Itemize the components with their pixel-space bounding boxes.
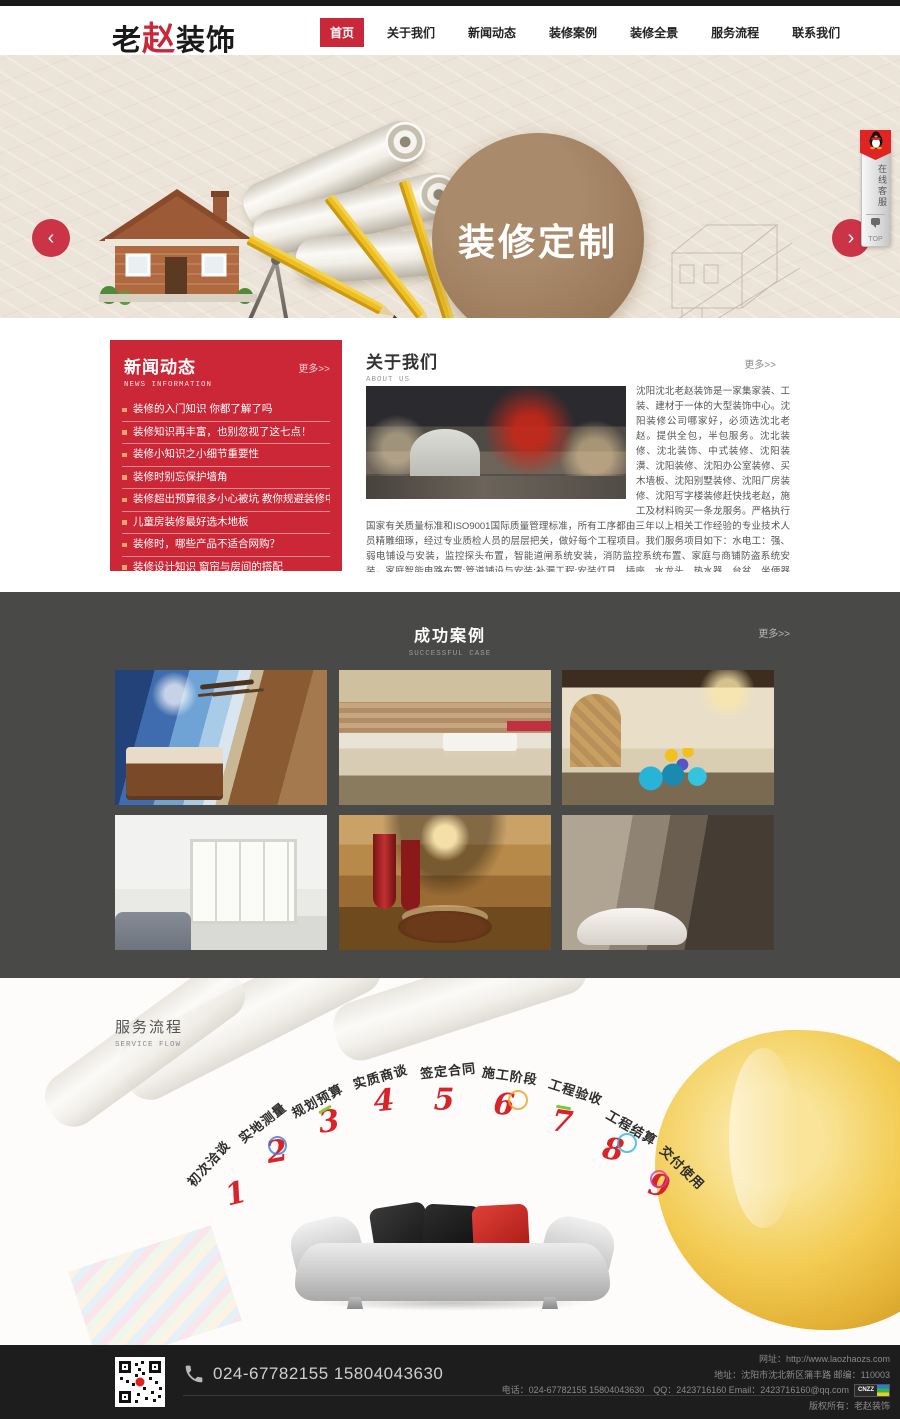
color-stripes-decoration bbox=[68, 1225, 242, 1345]
online-service-label[interactable]: 在线客服 bbox=[862, 164, 889, 208]
hero-banner: 装修定制 ‹ › 在线客服 TOP bbox=[0, 55, 900, 318]
logo-part1: 老 bbox=[112, 23, 142, 57]
footer-phone-number: 024-67782155 15804043630 bbox=[213, 1364, 443, 1384]
about-body: 沈阳沈北老赵装饰是一家集家装、工装、建材于一体的大型装饰中心。沈阳装修公司哪家好… bbox=[366, 384, 790, 572]
nav-item-about[interactable]: 关于我们 bbox=[377, 18, 445, 47]
nav-item-cases[interactable]: 装修案例 bbox=[539, 18, 607, 47]
about-section: 关于我们 ABOUT US 更多>> 沈阳沈北老赵装饰是一家集家装、工装、建材于… bbox=[366, 340, 790, 572]
header: 老赵装饰 首页 关于我们 新闻动态 装修案例 装修全景 服务流程 联系我们 bbox=[0, 6, 900, 56]
nav-item-service[interactable]: 服务流程 bbox=[701, 18, 769, 47]
service-step-number-5: 5 bbox=[434, 1083, 455, 1118]
banner-prev-button[interactable]: ‹ bbox=[32, 219, 70, 257]
news-panel: 新闻动态 NEWS INFORMATION 更多>> 装修的入门知识 你都了解了… bbox=[110, 340, 342, 571]
logo-part2: 赵 bbox=[142, 19, 176, 58]
logo-part3: 装饰 bbox=[176, 23, 236, 57]
nav-item-contact[interactable]: 联系我们 bbox=[782, 18, 850, 47]
nav-item-news[interactable]: 新闻动态 bbox=[458, 18, 526, 47]
news-subtitle: NEWS INFORMATION bbox=[124, 381, 328, 389]
news-more-link[interactable]: 更多>> bbox=[298, 360, 330, 375]
service-step-label-6: 施工阶段 bbox=[481, 1062, 539, 1089]
service-step-number-4: 4 bbox=[372, 1083, 396, 1120]
service-header: 服务流程 SERVICE FLOW bbox=[115, 1016, 183, 1049]
banner-circle-text: 装修定制 bbox=[458, 212, 618, 266]
service-flow-section: 服务流程 SERVICE FLOW 初次洽谈 1 实地测量 2 规划预算 3 实… bbox=[0, 978, 900, 1345]
footer: 024-67782155 15804043630 网址：http://www.l… bbox=[0, 1345, 900, 1419]
footer-phone: 024-67782155 15804043630 bbox=[183, 1363, 443, 1385]
service-step-label-5: 签定合同 bbox=[419, 1058, 477, 1083]
news-item[interactable]: 装修时，哪些产品不适合网购？ bbox=[122, 534, 330, 557]
cases-subtitle: SUCCESSFUL CASE bbox=[0, 650, 900, 658]
back-to-top-button[interactable]: TOP bbox=[862, 236, 889, 243]
service-subtitle: SERVICE FLOW bbox=[115, 1041, 183, 1049]
chat-bubble-icon[interactable] bbox=[871, 218, 880, 225]
case-image-bathroom-basin[interactable] bbox=[339, 670, 551, 805]
main-nav: 首页 关于我们 新闻动态 装修案例 装修全景 服务流程 联系我们 bbox=[320, 18, 863, 47]
chevron-left-icon: ‹ bbox=[48, 227, 55, 250]
footer-info: 网址：http://www.laozhaozs.com 地址：沈阳市沈北新区蒲丰… bbox=[502, 1352, 890, 1414]
news-item[interactable]: 儿童房装修最好选木地板 bbox=[122, 512, 330, 535]
showroom-panorama-image[interactable] bbox=[366, 386, 626, 499]
news-item[interactable]: 装修时别忘保护墙角 bbox=[122, 467, 330, 490]
news-list: 装修的入门知识 你都了解了吗 装修知识再丰富，也别忽视了这七点！ 装修小知识之小… bbox=[122, 399, 330, 579]
footer-copyright: 版权所有：老赵装饰 bbox=[502, 1399, 890, 1415]
doodle-ring bbox=[650, 1170, 668, 1188]
case-image-white-kitchen[interactable] bbox=[115, 815, 327, 950]
sofa-base bbox=[295, 1243, 610, 1301]
service-step-number-1: 1 bbox=[222, 1174, 251, 1213]
cases-more-link[interactable]: 更多>> bbox=[758, 625, 790, 640]
case-image-dolphin-bedroom[interactable] bbox=[115, 670, 327, 805]
news-item[interactable]: 装修设计知识 窗帘与房间的搭配 bbox=[122, 557, 330, 580]
footer-website[interactable]: 网址：http://www.laozhaozs.com bbox=[502, 1352, 890, 1368]
nav-item-home[interactable]: 首页 bbox=[320, 18, 364, 47]
case-image-luxury-dining[interactable] bbox=[339, 815, 551, 950]
widget-divider bbox=[866, 214, 885, 215]
doodle-ring bbox=[617, 1133, 637, 1153]
online-service-widget: 在线客服 TOP bbox=[861, 131, 890, 247]
cnzz-badge[interactable]: CNZZ bbox=[854, 1384, 890, 1397]
doodle-ring bbox=[508, 1090, 528, 1110]
logo[interactable]: 老赵装饰 bbox=[112, 12, 236, 60]
cases-section: 成功案例 SUCCESSFUL CASE 更多>> bbox=[0, 592, 900, 978]
about-subtitle: ABOUT US bbox=[366, 376, 790, 384]
nav-item-panorama[interactable]: 装修全景 bbox=[620, 18, 688, 47]
qr-code bbox=[115, 1357, 165, 1407]
phone-icon bbox=[183, 1363, 205, 1385]
cnzz-flag-icon bbox=[877, 1385, 889, 1396]
about-more-link[interactable]: 更多>> bbox=[744, 356, 776, 371]
sofa-illustration bbox=[295, 1183, 610, 1311]
footer-address: 地址：沈阳市沈北新区蒲丰路 邮编：110003 bbox=[502, 1368, 890, 1384]
about-header: 关于我们 ABOUT US 更多>> bbox=[366, 340, 790, 384]
news-item[interactable]: 装修小知识之小细节重要性 bbox=[122, 444, 330, 467]
qq-icon[interactable] bbox=[860, 130, 891, 160]
news-item[interactable]: 装修的入门知识 你都了解了吗 bbox=[122, 399, 330, 422]
case-image-mediterranean-dining[interactable] bbox=[562, 670, 774, 805]
doodle-ring bbox=[268, 1136, 287, 1155]
sofa-leg bbox=[542, 1297, 558, 1309]
page: 老赵装饰 首页 关于我们 新闻动态 装修案例 装修全景 服务流程 联系我们 bbox=[0, 0, 900, 1419]
about-title: 关于我们 bbox=[366, 340, 790, 373]
service-title: 服务流程 bbox=[115, 1016, 183, 1037]
cases-header: 成功案例 SUCCESSFUL CASE 更多>> bbox=[0, 592, 900, 658]
cnzz-label: CNZZ bbox=[855, 1383, 877, 1399]
case-image-classic-bathroom[interactable] bbox=[562, 815, 774, 950]
news-item[interactable]: 装修超出预算很多小心被坑 教你规避装修中的问题 bbox=[122, 489, 330, 512]
sofa-leg bbox=[347, 1297, 363, 1309]
footer-contact: 电话：024-67782155 15804043630 QQ：242371616… bbox=[502, 1383, 849, 1399]
chevron-right-icon: › bbox=[848, 227, 855, 250]
news-header: 新闻动态 NEWS INFORMATION 更多>> bbox=[110, 340, 342, 389]
news-item[interactable]: 装修知识再丰富，也别忽视了这七点！ bbox=[122, 422, 330, 445]
